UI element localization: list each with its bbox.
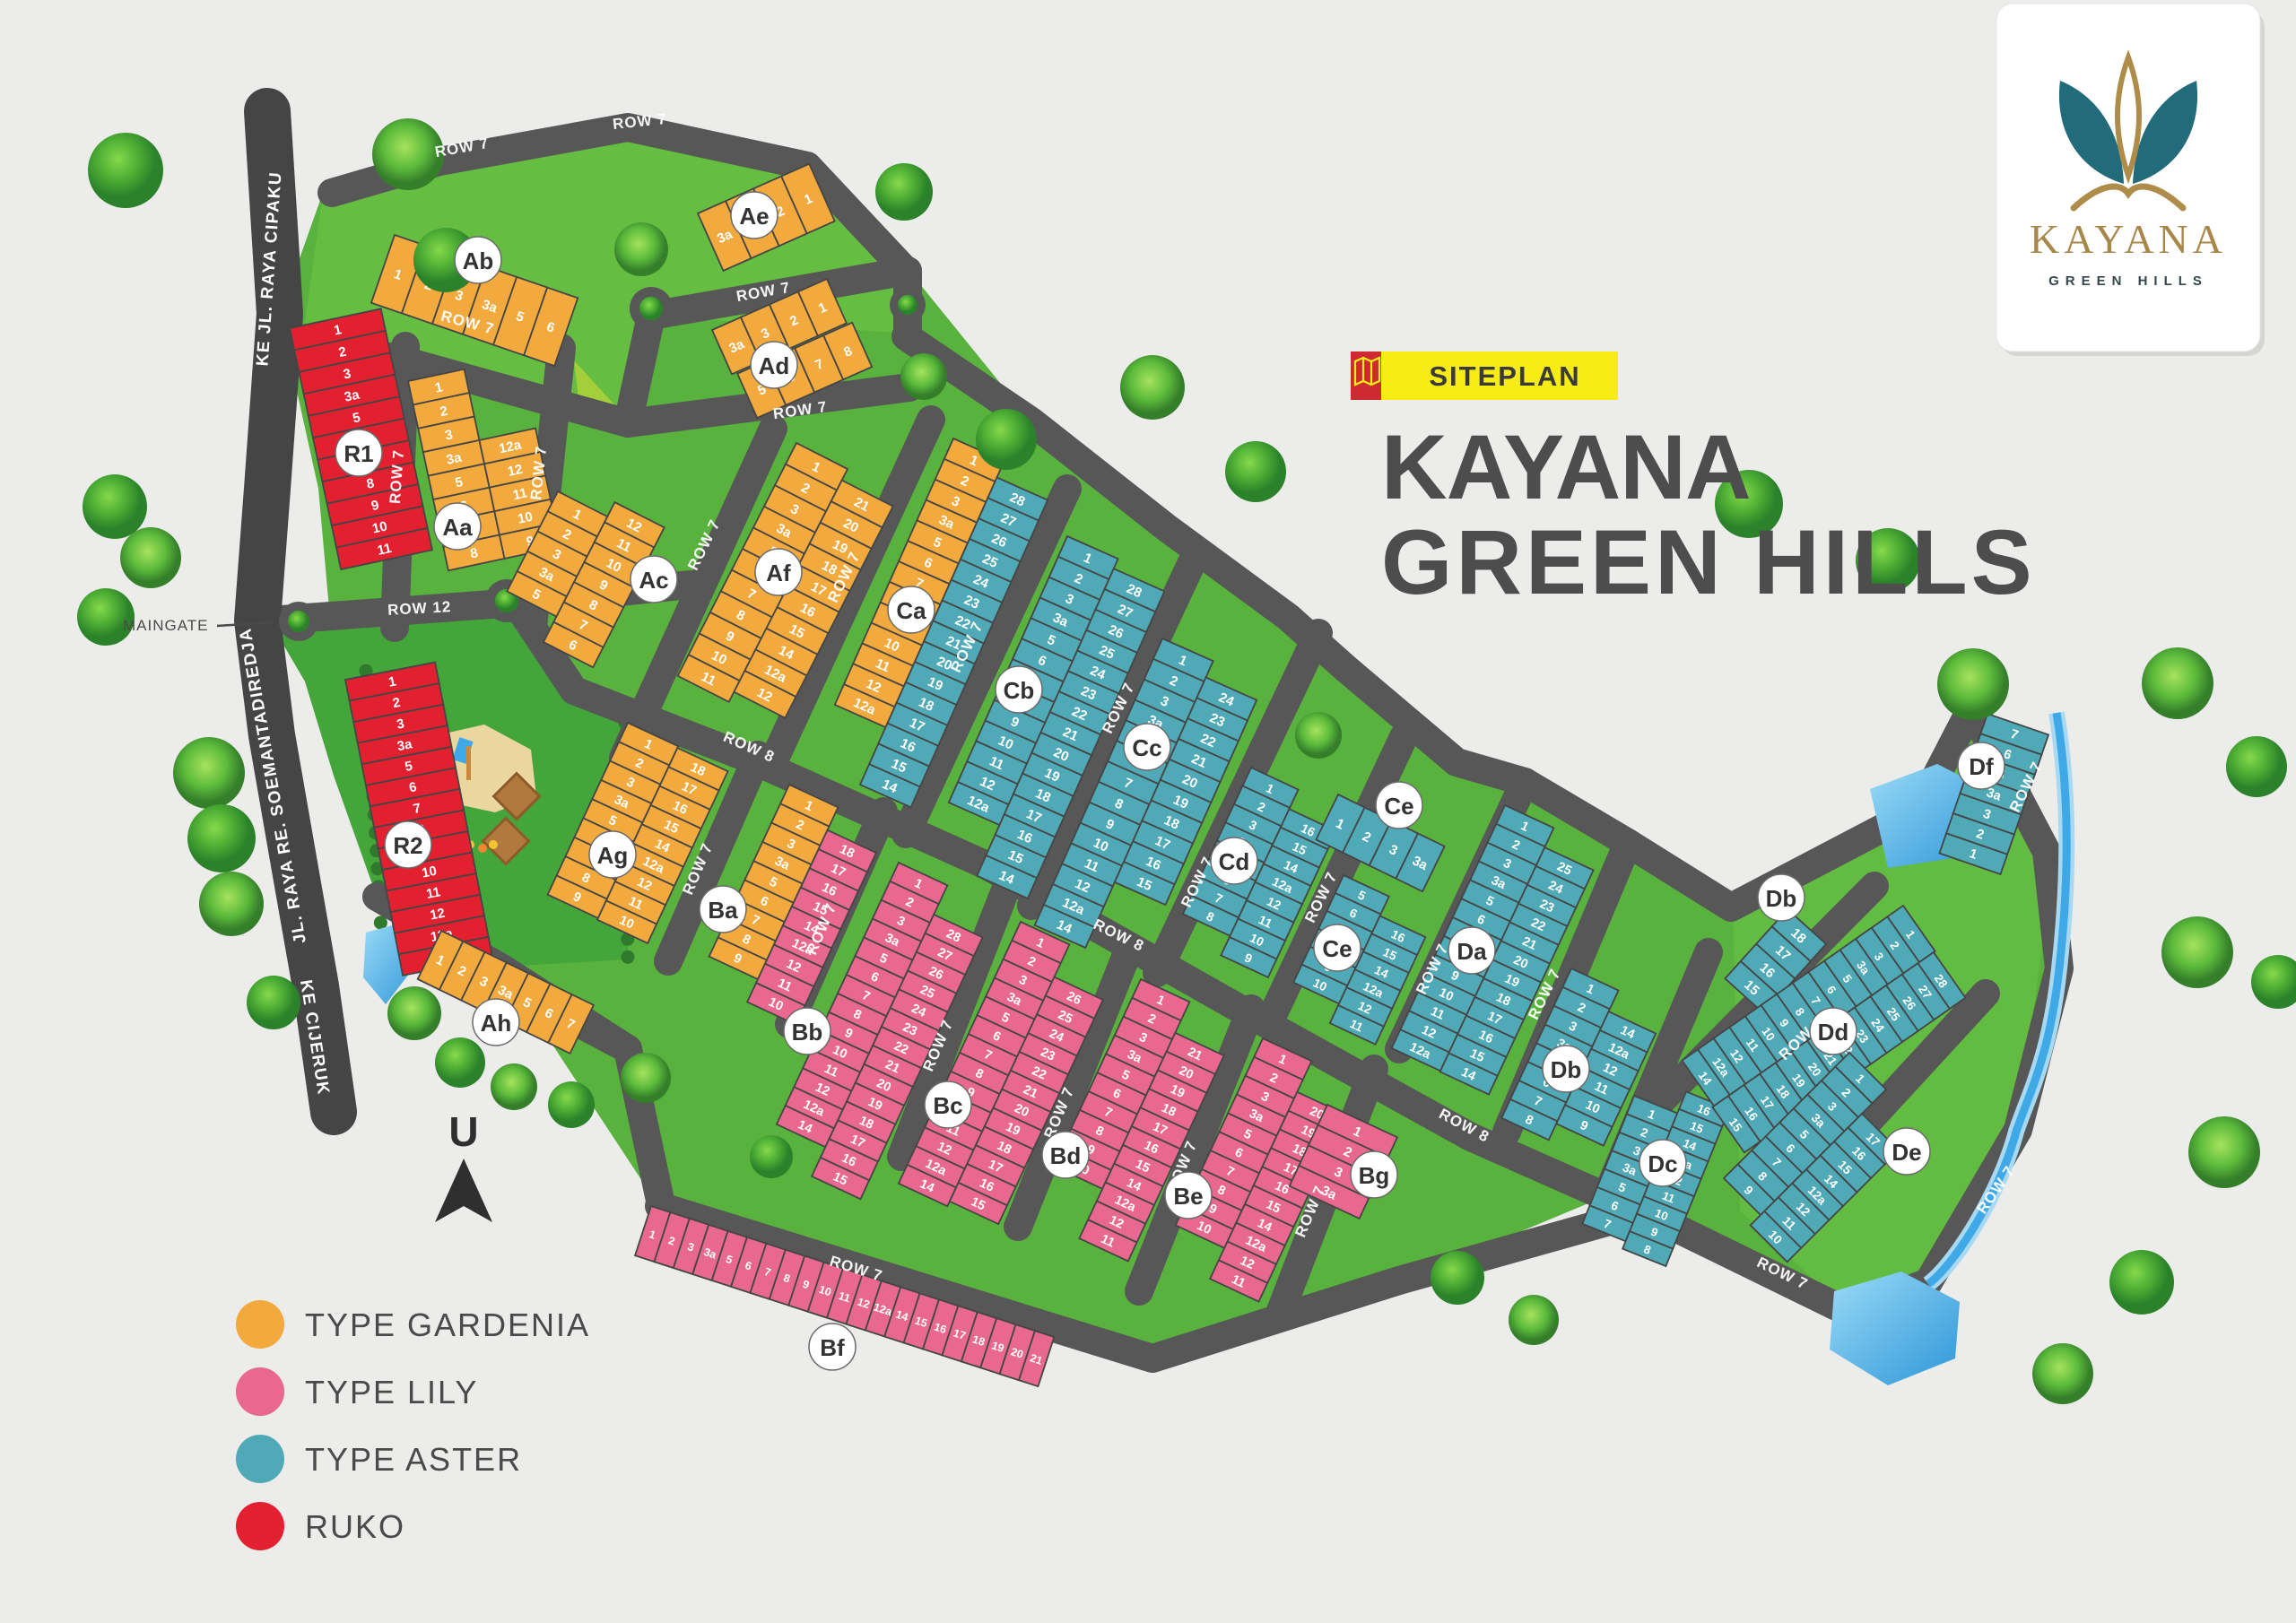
block-label-Ba: Ba [708, 897, 738, 924]
tree-icon [548, 1081, 595, 1128]
tree-icon [2251, 955, 2296, 1009]
legend-label-aster: TYPE ASTER [305, 1441, 522, 1478]
legend-item-aster: TYPE ASTER [236, 1435, 522, 1483]
tree-icon [1431, 1251, 1484, 1305]
block-label-Cd: Cd [1219, 848, 1250, 875]
lot-number-R2-11: 11 [425, 885, 441, 902]
tree-icon [2188, 1116, 2260, 1188]
tree-icon [621, 1053, 671, 1103]
tree-icon [173, 737, 245, 809]
legend-label-ruko: RUKO [305, 1508, 405, 1545]
tree-icon [247, 976, 300, 1029]
tree-icon [120, 527, 181, 588]
lot-number-R1-10: 10 [371, 518, 389, 536]
lot-number-R2-10: 10 [421, 864, 438, 881]
tree-icon [750, 1135, 793, 1178]
tree-icon [2142, 647, 2213, 719]
tree-icon [1509, 1295, 1559, 1345]
legend-label-gardenia: TYPE GARDENIA [305, 1306, 590, 1343]
page-title-line2: GREEN HILLS [1381, 511, 2036, 613]
block-label-Ag: Ag [597, 842, 629, 869]
tree-icon [2109, 1250, 2174, 1315]
legend-item-lily: TYPE LILY [236, 1367, 478, 1416]
block-label-R2: R2 [393, 832, 422, 859]
block-label-Cb: Cb [1004, 677, 1035, 704]
roundabout-tree-icon [898, 295, 918, 315]
tree-icon [900, 353, 947, 400]
tree-icon [387, 986, 441, 1040]
tree-icon [1937, 648, 2009, 720]
block-label-Db: Db [1551, 1056, 1582, 1083]
tree-icon [1295, 712, 1342, 759]
lot-number-R2-12: 12 [429, 907, 446, 924]
block-label-R1: R1 [344, 440, 373, 467]
tree-icon [875, 163, 933, 221]
block-label-Dd: Dd [1818, 1019, 1849, 1046]
block-label-Df: Df [1969, 753, 1994, 780]
block-label-Bg: Bg [1359, 1162, 1390, 1189]
tree-icon [976, 409, 1037, 470]
block-label-Ac: Ac [639, 567, 668, 594]
legend-swatch-ruko [236, 1502, 284, 1550]
block-label-Bd: Bd [1050, 1142, 1082, 1169]
title-block: SITEPLAN KAYANA GREEN HILLS [1351, 352, 2036, 613]
siteplan-banner-label: SITEPLAN [1429, 360, 1580, 392]
block-label-Bc: Bc [933, 1092, 962, 1119]
roundabout-tree-icon [288, 611, 309, 632]
stepping-stone [489, 840, 498, 849]
maingate-label: MAINGATE [123, 617, 209, 634]
lot-number-Aa-10: 10 [517, 509, 535, 527]
tree-icon [199, 872, 264, 936]
legend-swatch-gardenia [236, 1300, 284, 1349]
legend: TYPE GARDENIA TYPE LILY TYPE ASTER RUKO [236, 1300, 590, 1550]
tree-icon [435, 1037, 485, 1088]
block-label-Ce: Ce [1384, 793, 1413, 820]
block-label-Aa: Aa [442, 514, 473, 541]
tree-icon [491, 1063, 537, 1110]
logo-card: KAYANA GREEN HILLS [1996, 4, 2265, 356]
block-label-Ah: Ah [481, 1010, 512, 1037]
block-label-Ce: Ce [1322, 935, 1352, 962]
block-label-Dc: Dc [1648, 1150, 1677, 1177]
legend-swatch-lily [236, 1367, 284, 1416]
tree-icon [372, 118, 444, 190]
tree-icon [2161, 916, 2233, 988]
compass: U [435, 1108, 492, 1222]
stepping-stone [478, 844, 487, 853]
road-label: ROW 12 [387, 598, 452, 619]
block-label-Ab: Ab [463, 247, 494, 274]
tree-icon [1225, 441, 1286, 502]
compass-label: U [448, 1108, 478, 1155]
tree-icon [2032, 1343, 2093, 1404]
block-label-Bf: Bf [820, 1334, 845, 1361]
legend-label-lily: TYPE LILY [305, 1374, 478, 1410]
tree-icon [614, 222, 668, 276]
page-title-line1: KAYANA [1381, 416, 1751, 518]
block-label-Da: Da [1457, 938, 1487, 965]
legend-item-gardenia: TYPE GARDENIA [236, 1300, 590, 1349]
roundabout-tree-icon [639, 297, 663, 320]
tree-icon [1120, 355, 1185, 420]
block-label-Bb: Bb [792, 1019, 823, 1046]
tree-icon [187, 804, 256, 872]
siteplan-poster: 1233a5678910111233a5678910111212a141233a… [0, 0, 2296, 1623]
logo-name: KAYANA [2030, 216, 2227, 262]
legend-item-ruko: RUKO [236, 1502, 405, 1550]
legend-swatch-aster [236, 1435, 284, 1483]
tree-icon [83, 474, 147, 539]
block-label-Cc: Cc [1132, 734, 1161, 761]
block-label-Ad: Ad [759, 352, 790, 379]
north-arrow-icon [435, 1159, 492, 1222]
block-label-Db: Db [1766, 885, 1797, 912]
siteplan-map: 1233a5678910111233a5678910111212a141233a… [77, 110, 2296, 1404]
block-label-De: De [1892, 1139, 1921, 1166]
lot-number-Aa-12: 12 [506, 462, 524, 480]
block-label-Ae: Ae [739, 203, 769, 230]
tree-icon [88, 133, 163, 208]
block-label-Af: Af [766, 560, 791, 586]
logo-subtitle: GREEN HILLS [2048, 273, 2208, 289]
block-label-Be: Be [1173, 1183, 1203, 1210]
playground-slide-pole [466, 746, 471, 780]
block-label-Ca: Ca [896, 597, 926, 624]
tree-icon [2226, 736, 2287, 797]
